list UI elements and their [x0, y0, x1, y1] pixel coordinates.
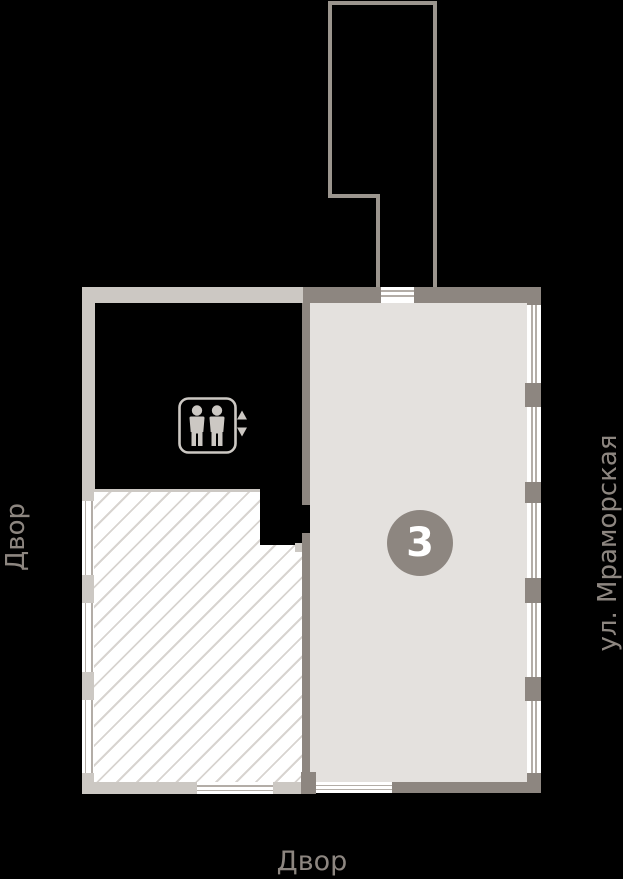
- wall-top-right-1: [303, 287, 381, 303]
- center-wall-lower: [302, 533, 310, 793]
- window-glass-line: [197, 785, 273, 787]
- hatched-area-top-border: [94, 489, 260, 492]
- label-text: ул. Мраморская: [593, 435, 623, 652]
- label-text: Двор: [1, 503, 31, 571]
- wall-bottom-right-jamb: [301, 772, 316, 794]
- window-glass-line: [197, 790, 273, 792]
- wall-bottom-left-1: [82, 782, 197, 794]
- wall-pier-right-1: [525, 383, 541, 407]
- elevator-icon: [176, 395, 252, 457]
- wall-top-left-block: [82, 287, 303, 303]
- label-street-right: ул. Мраморская: [593, 431, 623, 655]
- unit-number-badge[interactable]: 3: [387, 510, 453, 576]
- wall-pier-right-2: [525, 482, 541, 503]
- window-glass-line: [381, 295, 414, 297]
- window-glass-line: [316, 789, 392, 791]
- window-left-wall: [82, 501, 95, 773]
- wall-pier-left-2: [82, 672, 96, 700]
- wall-pier-right-4: [525, 677, 541, 701]
- center-wall-upper: [302, 303, 310, 505]
- wall-bottom-left-2: [273, 782, 302, 794]
- window-glass-line: [381, 290, 414, 292]
- window-glass-line: [91, 501, 93, 773]
- window-right-wall: [527, 305, 541, 773]
- wall-pier-left-1: [82, 575, 96, 603]
- label-text: Двор: [277, 846, 348, 877]
- window-glass-line: [85, 501, 87, 773]
- window-bottom-right: [316, 782, 392, 793]
- wall-left-upper: [82, 287, 95, 501]
- window-glass-line: [316, 785, 392, 787]
- floor-plan-canvas: 3 Двор Двор ул. Мраморская: [0, 0, 623, 879]
- wall-pier-right-3: [525, 578, 541, 603]
- wall-corner-top-right: [525, 287, 541, 305]
- window-glass-line: [531, 305, 533, 773]
- window-glass-line: [535, 305, 537, 773]
- arrow-up-icon: [237, 411, 247, 420]
- wall-top-right-2: [414, 287, 541, 303]
- label-courtyard-left: Двор: [2, 482, 30, 592]
- wall-bottom-right-2: [392, 782, 541, 793]
- arrow-down-icon: [237, 428, 247, 437]
- window-top: [381, 287, 414, 303]
- unit-number: 3: [406, 523, 434, 563]
- label-courtyard-bottom: Двор: [252, 846, 372, 876]
- window-bottom-left: [197, 782, 273, 794]
